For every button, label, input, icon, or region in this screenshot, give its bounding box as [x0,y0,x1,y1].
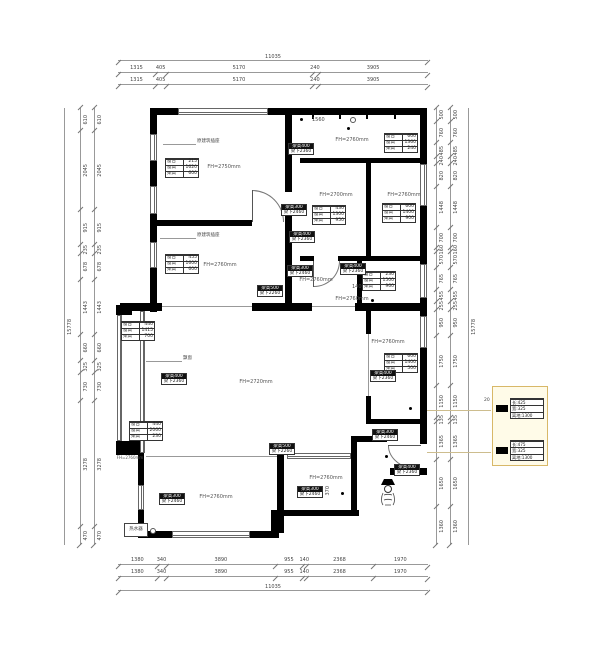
ceiling-light-icon [392,113,399,115]
dim-segment: 1365 [450,422,461,460]
dim-top-row2: 131540551702403905 [118,76,428,85]
inline-dim: 20 [484,398,490,403]
electrical-point-icon [347,127,350,130]
dim-segment: 1380 [118,568,157,577]
wall-segment [355,303,427,311]
room-label-room-mid-s: FH=2760mm [335,297,368,302]
leader-line [160,238,196,239]
window [420,164,427,206]
inline-dim: 1560 [312,118,325,123]
window [138,485,144,510]
leader-note-socket: 原建筑插座 [197,234,220,239]
window-spec-table: 窗台600窗高1360梁高240 [384,133,418,153]
wall-segment [277,510,359,516]
beam-note: 梁高300梁下2460 [297,486,323,498]
room-label-room-e: FH=2760mm [371,340,404,345]
fixture-point-icon [150,528,156,534]
dim-segment: 2045 [94,131,105,209]
wall-segment [366,163,371,260]
dim-segment: 240 [312,76,319,85]
dim-value: 11035 [265,54,281,60]
dim-segment: 3278 [94,401,105,527]
dim-segment: 1360 [450,507,461,545]
electrical-point-icon [397,305,400,308]
window-spec-table: 窗台430窗高1300梁高950 [312,205,346,225]
beam-note: 梁高400梁下2360 [161,373,187,385]
dim-segment: 3278 [80,401,91,527]
dim-segment: 2368 [306,556,372,565]
dim-bottom-row2: 1380340389095514023681970 [118,568,428,577]
dim-segment: 3905 [318,64,428,73]
dim-segment: 1365 [436,422,447,460]
unit-stub-icon [496,405,508,412]
beam-note: 梁高400梁下2360 [340,263,366,275]
dim-segment: 915 [94,210,105,245]
dim-segment: 1970 [373,568,428,577]
beam-note: 梁高400梁下2360 [289,231,315,243]
electrical-point-icon [300,118,303,121]
leader-line [146,361,182,362]
dim-segment: 1443 [94,280,105,335]
hall-door-arc [314,261,340,287]
room-label-room-sw: FH=2760mm [199,495,232,500]
wall-segment [366,419,427,424]
dim-segment: 3905 [318,76,428,85]
hall-door-leaf [313,261,314,287]
beam-note: 梁高400梁下2360 [370,370,396,382]
room-label-room-s: FH=2760mm [309,476,342,481]
room-boundary-line [312,306,355,307]
dim-segment: 5170 [166,64,311,73]
leader-note-socket: 原建筑插座 [197,140,220,145]
wall-segment [351,436,357,515]
wall-segment [366,311,371,334]
window-spec-table: 窗台455窗高1600梁高600 [165,254,199,274]
dim-segment: 2045 [80,131,91,209]
dim-right-overall: 15778 [468,108,479,545]
dim-bottom-overall: 11035 [118,582,428,591]
dim-left-overall: 15778 [64,108,75,545]
dim-segment: 3890 [166,556,275,565]
beam-note: 梁高300梁下2460 [281,204,307,216]
beam-note: 梁高400梁下2360 [394,464,420,476]
dim-value: 15778 [472,319,477,335]
beam-note: 梁高300梁下2460 [159,493,185,505]
room-label-room-n: FH=2760mm [335,138,368,143]
dim-left-col2: 610204591523567814436603257303278470 [94,108,105,545]
room-boundary-line [162,306,252,307]
room-boundary-line [146,456,277,457]
dim-segment: 1150 [450,386,461,418]
dim-segment: 1380 [118,556,157,565]
leader-line [163,144,196,145]
water-heater-box: 热水器 [124,523,148,537]
room-boundary-line [368,334,369,396]
window-spec-table: 窗台600窗高1400梁高900 [382,203,416,223]
room-label-bedroom-w: FH=2760mm [203,263,236,268]
window [172,531,250,538]
legend-connector-line [427,452,491,453]
wall-segment [300,256,314,261]
room-label-room-mid-a: FH=2700mm [319,193,352,198]
room-label-balcony-w: FH=2760mm [117,456,144,460]
dim-segment: 2368 [306,568,372,577]
dim-segment: 405 [155,76,166,85]
window [150,186,157,214]
unit-stub-icon [496,447,508,454]
entry-door-leaf [388,445,421,446]
dim-segment: 470 [80,527,91,545]
wall-segment [150,220,252,226]
dim-segment: 3890 [166,568,275,577]
dim-segment: 340 [157,556,167,565]
legend-box: 长:425宽:325离地:1300 长:475宽:325离地:1300 [492,386,548,466]
ceiling-point-icon [350,117,356,123]
electrical-point-icon [371,299,374,302]
dim-segment: 1970 [373,556,428,565]
beam-note: 梁高300梁下2460 [287,265,313,277]
dim-segment: 1650 [450,460,461,506]
window-spec-table: 窗台440窗高2060梁高230 [129,421,163,441]
electrical-point-icon [385,455,388,458]
room-label-hall: FH=2760mm [299,278,332,283]
window [420,316,427,348]
dim-segment: 470 [94,527,105,545]
ceiling-light-icon [337,113,344,115]
room-label-living: FH=2720mm [239,380,272,385]
wall-segment [285,212,292,310]
dim-segment: 1443 [80,280,91,335]
beam-note: 梁高500梁下2260 [257,285,283,297]
dim-segment: 955 [275,568,302,577]
dim-segment: 340 [157,568,167,577]
wall-segment [420,108,427,164]
wall-segment [252,303,312,311]
dim-value: 15778 [68,319,73,335]
dim-segment: 1150 [436,386,447,418]
electrical-point-icon [409,407,412,410]
dim-segment: 915 [80,210,91,245]
window-spec-table: 窗台215窗高1620梁高600 [165,158,199,178]
beam-note: 梁高500梁下2260 [269,443,295,455]
wall-segment [338,256,427,261]
dim-segment: 1315 [118,76,155,85]
wall-segment [150,108,157,134]
dim-segment: 1315 [118,64,155,73]
dim-right-col1: 5007604852408201448700160570765455255950… [436,108,447,545]
dim-top-row1: 131540551702403905 [118,64,428,73]
ceiling-light-icon [364,113,371,115]
unit-spec-label: 长:425宽:325离地:1300 [510,398,544,419]
window [150,242,157,268]
ceiling-light-icon [310,113,317,115]
dim-segment: 1360 [436,507,447,545]
electrical-point-icon [341,492,344,495]
inline-dim: 370 [326,486,331,496]
dim-left-col1: 610204591523567814436603257303278470 [80,108,91,545]
wall-segment [150,214,157,242]
legend-connector-line [427,410,491,411]
dim-segment: 5170 [166,76,311,85]
beam-note: 梁高300梁下2460 [372,429,398,441]
window [420,264,427,298]
dim-segment: 1448 [436,187,447,228]
dim-segment: 955 [275,556,302,565]
unit-spec-label: 长:475宽:325离地:1300 [510,440,544,461]
dim-top-overall: 11035 [118,52,428,61]
bedroom-door-arc [252,190,284,222]
room-label-bedroom-nw: FH=2750mm [207,165,240,170]
dim-segment: 1750 [450,336,461,385]
window [287,453,351,459]
dim-segment: 240 [312,64,319,73]
window-spec-table: 窗台230窗高1500梁高960 [362,271,396,291]
dim-segment: 405 [155,64,166,73]
window-spec-table: 窗台440窗高1415梁高700 [121,321,155,341]
dim-segment: 1650 [436,460,447,506]
beam-note: 梁高400梁下2360 [288,143,314,155]
dim-right-col2: 5007604852408201448700160570765455255950… [450,108,461,545]
bedroom-door-leaf [252,190,253,222]
wall-segment [150,161,157,186]
wall-segment [420,348,427,444]
floorplan-canvas: 11035 131540551702403905 131540551702403… [0,0,600,656]
person-icon [376,476,400,506]
dim-bottom-row1: 1380340389095514023681970 [118,556,428,565]
window [178,108,268,115]
wall-segment [277,453,284,533]
dim-value: 11035 [265,584,281,590]
wall-segment [120,303,162,311]
window [150,134,157,161]
dim-segment: 1448 [450,187,461,228]
leader-note-bay-window: 飘窗 [183,357,192,362]
wall-segment [300,158,427,163]
dim-segment: 1750 [436,336,447,385]
room-label-room-mid-b: FH=2760mm [387,193,420,198]
